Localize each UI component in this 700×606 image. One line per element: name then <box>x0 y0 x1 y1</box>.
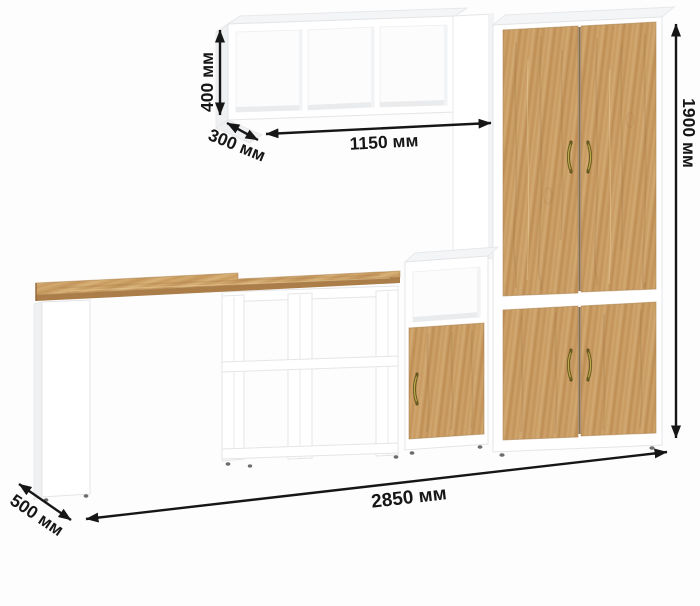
connecting-column <box>453 14 493 261</box>
dimension-label-cabinet-height: 1900 мм <box>679 98 699 168</box>
lower-cabinet-open-shelf <box>413 267 480 322</box>
wall-shelf-compartment <box>236 30 302 112</box>
wall-shelf-compartment <box>380 25 447 107</box>
product-render: 400 мм 300 мм 1150 мм 1900 мм 2850 мм 50… <box>0 0 700 606</box>
lower-cabinet <box>405 247 498 455</box>
desk-leg-side <box>34 302 42 500</box>
cube-left-post <box>222 295 244 461</box>
wardrobe-lower-door-right <box>581 302 656 436</box>
cube-right-post <box>376 290 398 456</box>
dimension-label-shelf-height: 400 мм <box>197 52 217 112</box>
furniture-dimension-diagram: 400 мм 300 мм 1150 мм 1900 мм 2850 мм 50… <box>0 0 700 606</box>
desk-leg <box>42 300 90 497</box>
wall-shelf-compartment <box>308 27 374 110</box>
dimension-label-shelf-width: 1150 мм <box>349 130 419 154</box>
wardrobe <box>493 7 674 457</box>
wardrobe-lower-door-left <box>503 306 578 440</box>
wall-shelf-left-side <box>216 24 228 128</box>
